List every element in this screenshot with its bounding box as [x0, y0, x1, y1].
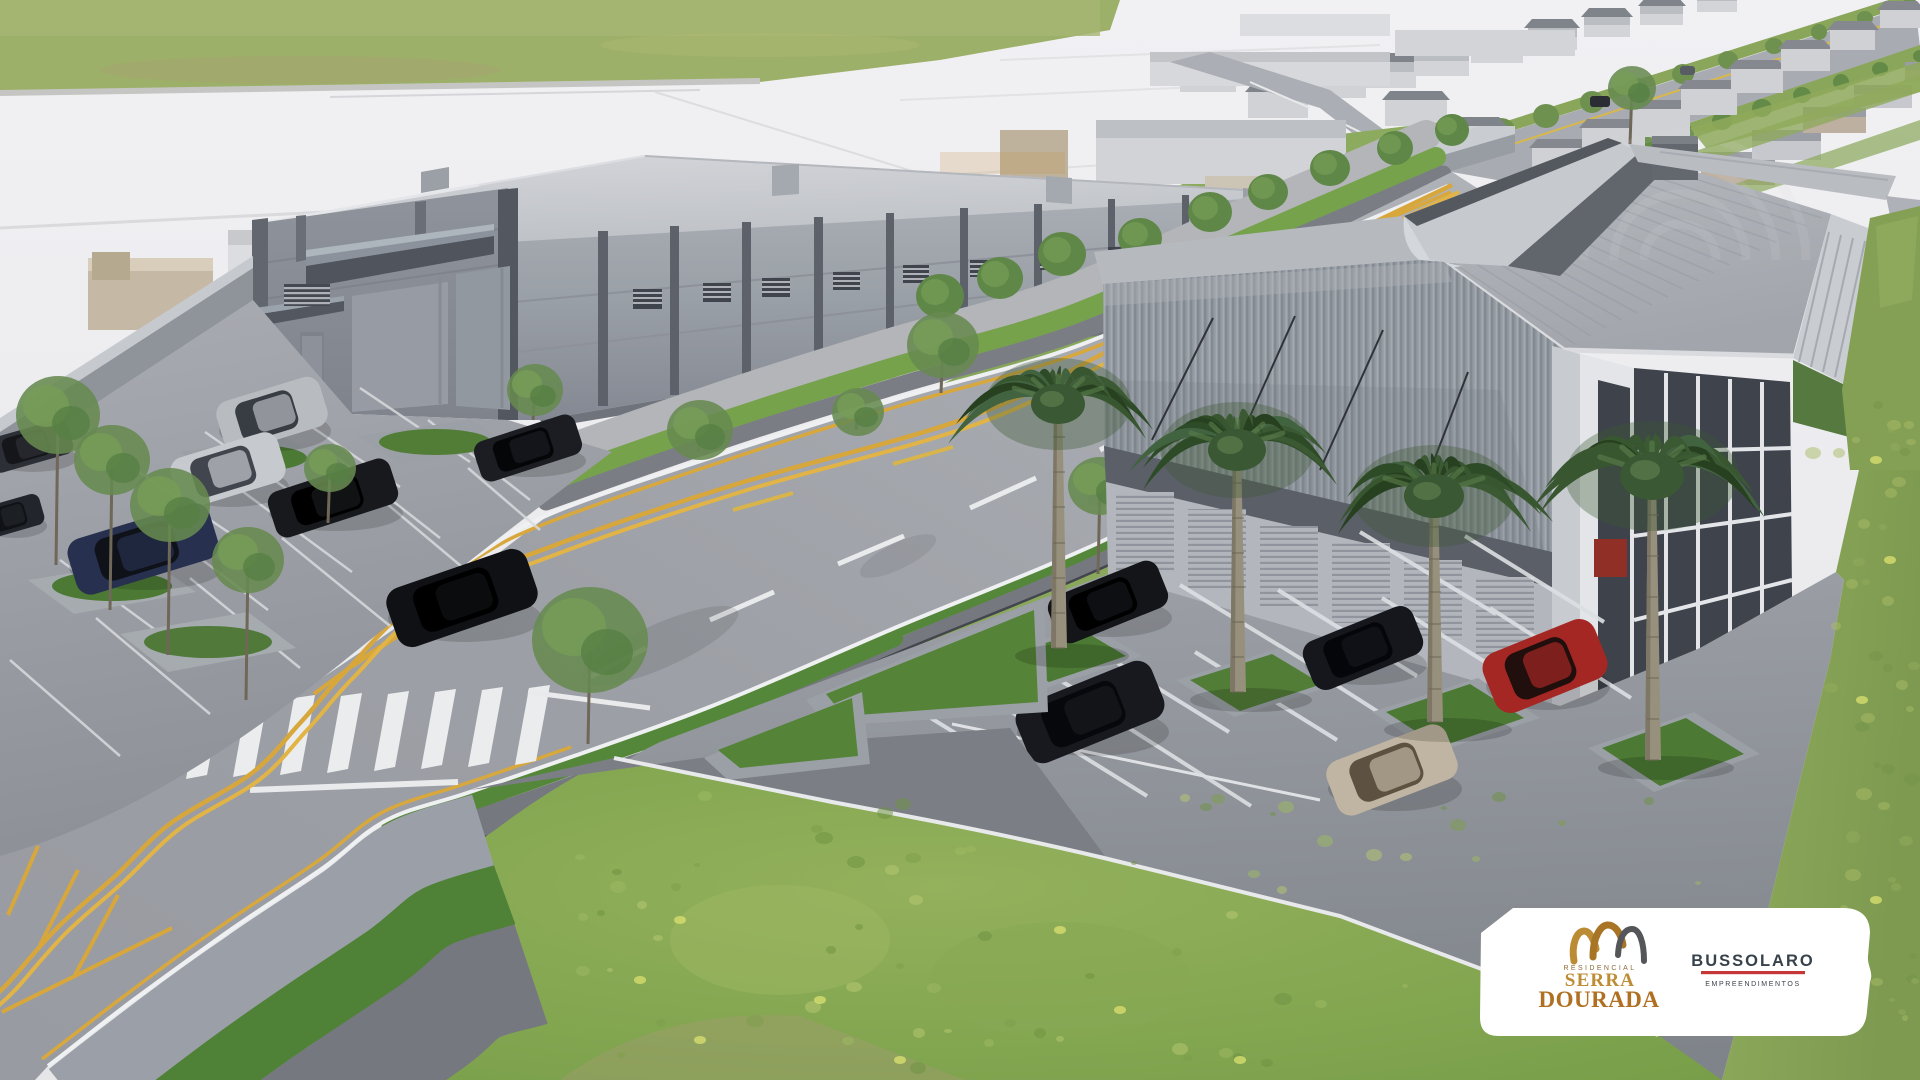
- svg-text:DOURADA: DOURADA: [1538, 987, 1659, 1012]
- svg-text:BUSSOLARO: BUSSOLARO: [1691, 952, 1814, 970]
- svg-text:EMPREENDIMENTOS: EMPREENDIMENTOS: [1705, 981, 1800, 988]
